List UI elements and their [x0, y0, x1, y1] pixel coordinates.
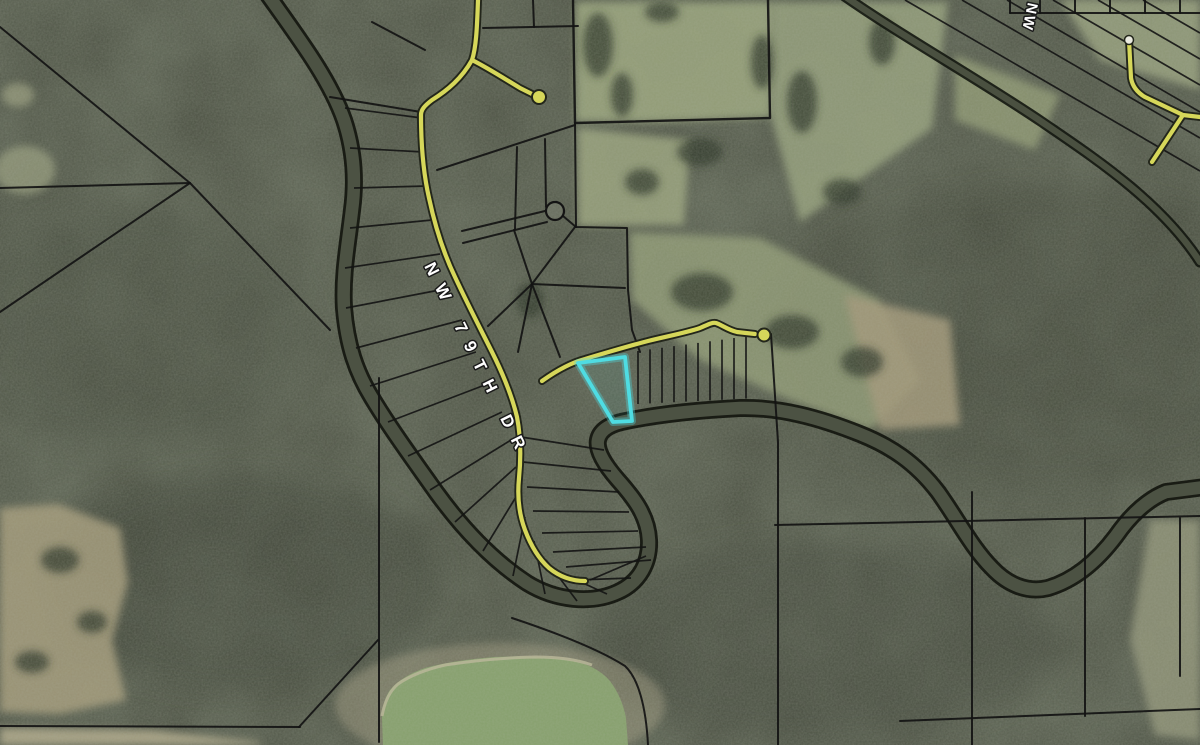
cul-de-sac-topright	[1125, 36, 1134, 45]
cul-de-sac-north	[532, 90, 546, 104]
aerial-parcel-map[interactable]: NW 79TH DR NW	[0, 0, 1200, 745]
keyhole-lot-circle	[546, 202, 564, 220]
cul-de-sac-east	[758, 329, 771, 342]
